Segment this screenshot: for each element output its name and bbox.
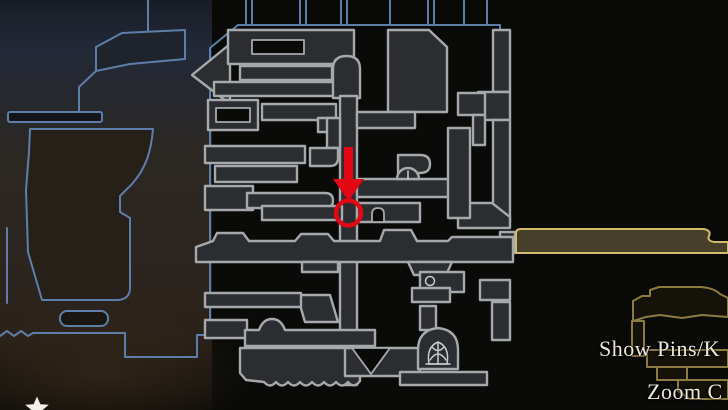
highlighted-corridor xyxy=(516,229,728,253)
zoom-camera-label: Zoom C xyxy=(647,379,723,405)
map-screen: Show Pins/K Zoom C xyxy=(0,0,728,410)
bench-icon xyxy=(397,168,419,179)
show-pins-label: Show Pins/K xyxy=(599,336,720,362)
